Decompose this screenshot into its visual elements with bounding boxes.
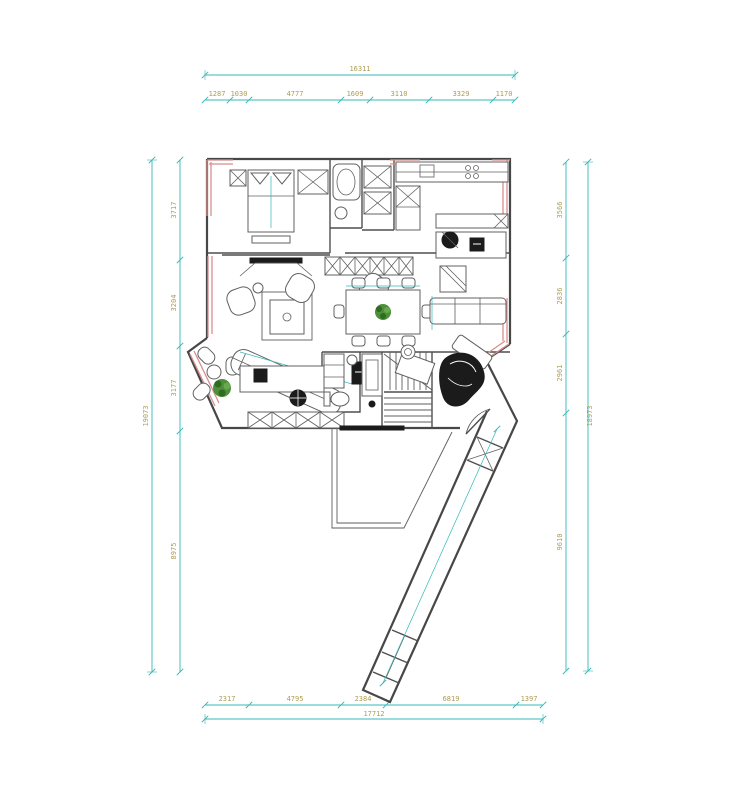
floor-drain	[369, 401, 375, 407]
dining-chair	[352, 278, 365, 288]
threshold	[340, 426, 404, 430]
tv-screen	[250, 258, 302, 263]
desk-lamp	[254, 369, 267, 382]
study-nook	[436, 232, 506, 258]
dim-label: 1397	[521, 695, 538, 703]
floor-plan-canvas: 16311 1287 1030 4777 1609 3110 3329 1170…	[0, 0, 740, 800]
left-overall-dimension: 19073	[142, 157, 157, 675]
bathroom	[333, 164, 360, 219]
small-desk	[395, 352, 434, 384]
toilet	[331, 392, 349, 406]
dim-label: 3329	[453, 90, 470, 98]
armchair	[224, 284, 257, 317]
dim-label: 8975	[170, 543, 178, 560]
bed-bench	[252, 236, 290, 243]
dining-chair	[352, 336, 365, 346]
toilet-tank	[324, 392, 330, 406]
side-table	[253, 283, 263, 293]
dim-label: 16311	[349, 65, 370, 73]
tv-wall	[222, 255, 330, 276]
dining-chair	[402, 278, 415, 288]
left-dimension-chain: 3717 3204 3177 8975	[170, 157, 183, 675]
dim-label: 18973	[586, 405, 594, 426]
dim-label: 2961	[556, 365, 564, 382]
second-bedroom	[395, 334, 493, 406]
dining-chair	[334, 305, 344, 318]
kitchen	[396, 162, 508, 230]
dim-label: 3110	[391, 90, 408, 98]
dining-chair	[377, 336, 390, 346]
master-bedroom	[230, 170, 328, 243]
dim-label: 17712	[363, 710, 384, 718]
dim-label: 3177	[170, 380, 178, 397]
dim-label: 9610	[556, 534, 564, 551]
shaft-vanity	[362, 354, 382, 407]
right-dimension-chain: 3566 2836 2961 9610	[556, 159, 569, 674]
dim-label: 4795	[287, 695, 304, 703]
potted-plant	[213, 379, 231, 397]
fridge	[396, 186, 420, 230]
utility-closet	[364, 166, 391, 214]
dim-label: 2836	[556, 288, 564, 305]
right-overall-dimension: 18973	[583, 159, 594, 674]
lounge-chair	[195, 345, 217, 367]
dim-label: 6819	[443, 695, 460, 703]
round-chair	[401, 345, 415, 359]
terrace-outline	[332, 428, 452, 528]
dining-chair	[377, 278, 390, 288]
bottom-dimension-chain: 2317 4795 2384 6819 1397	[202, 695, 546, 708]
dining-area	[334, 278, 432, 346]
bathroom-cabinet	[324, 354, 344, 388]
top-dimension-chain: 1287 1030 4777 1609 3110 3329 1170	[202, 90, 518, 103]
sofa	[430, 298, 506, 324]
dim-label: 3204	[170, 295, 178, 312]
dim-label: 1170	[496, 90, 513, 98]
dim-label: 19073	[142, 405, 150, 426]
sink	[347, 355, 357, 365]
kitchen-island	[436, 214, 508, 228]
dim-label: 1287	[209, 90, 226, 98]
hall-wardrobe-row	[325, 257, 413, 275]
dining-chair	[402, 336, 415, 346]
top-overall-dimension: 16311	[202, 65, 518, 80]
desk	[240, 366, 324, 392]
coffee-table	[270, 300, 304, 334]
entry-corridor	[373, 409, 503, 686]
bathroom-sink	[335, 207, 347, 219]
floor-plan-drawing: 16311 1287 1030 4777 1609 3110 3329 1170…	[0, 0, 740, 800]
bottom-cabinet-row	[248, 412, 344, 428]
centerpiece-plant	[375, 304, 391, 320]
sofa-wall	[430, 266, 506, 330]
dim-label: 1609	[347, 90, 364, 98]
dim-label: 3717	[170, 202, 178, 219]
dim-label: 4777	[287, 90, 304, 98]
round-table	[207, 365, 221, 379]
dim-label: 2384	[355, 695, 372, 703]
dim-label: 1030	[231, 90, 248, 98]
dim-label: 3566	[556, 202, 564, 219]
bottom-overall-dimension: 17712	[202, 710, 546, 724]
dim-label: 2317	[219, 695, 236, 703]
